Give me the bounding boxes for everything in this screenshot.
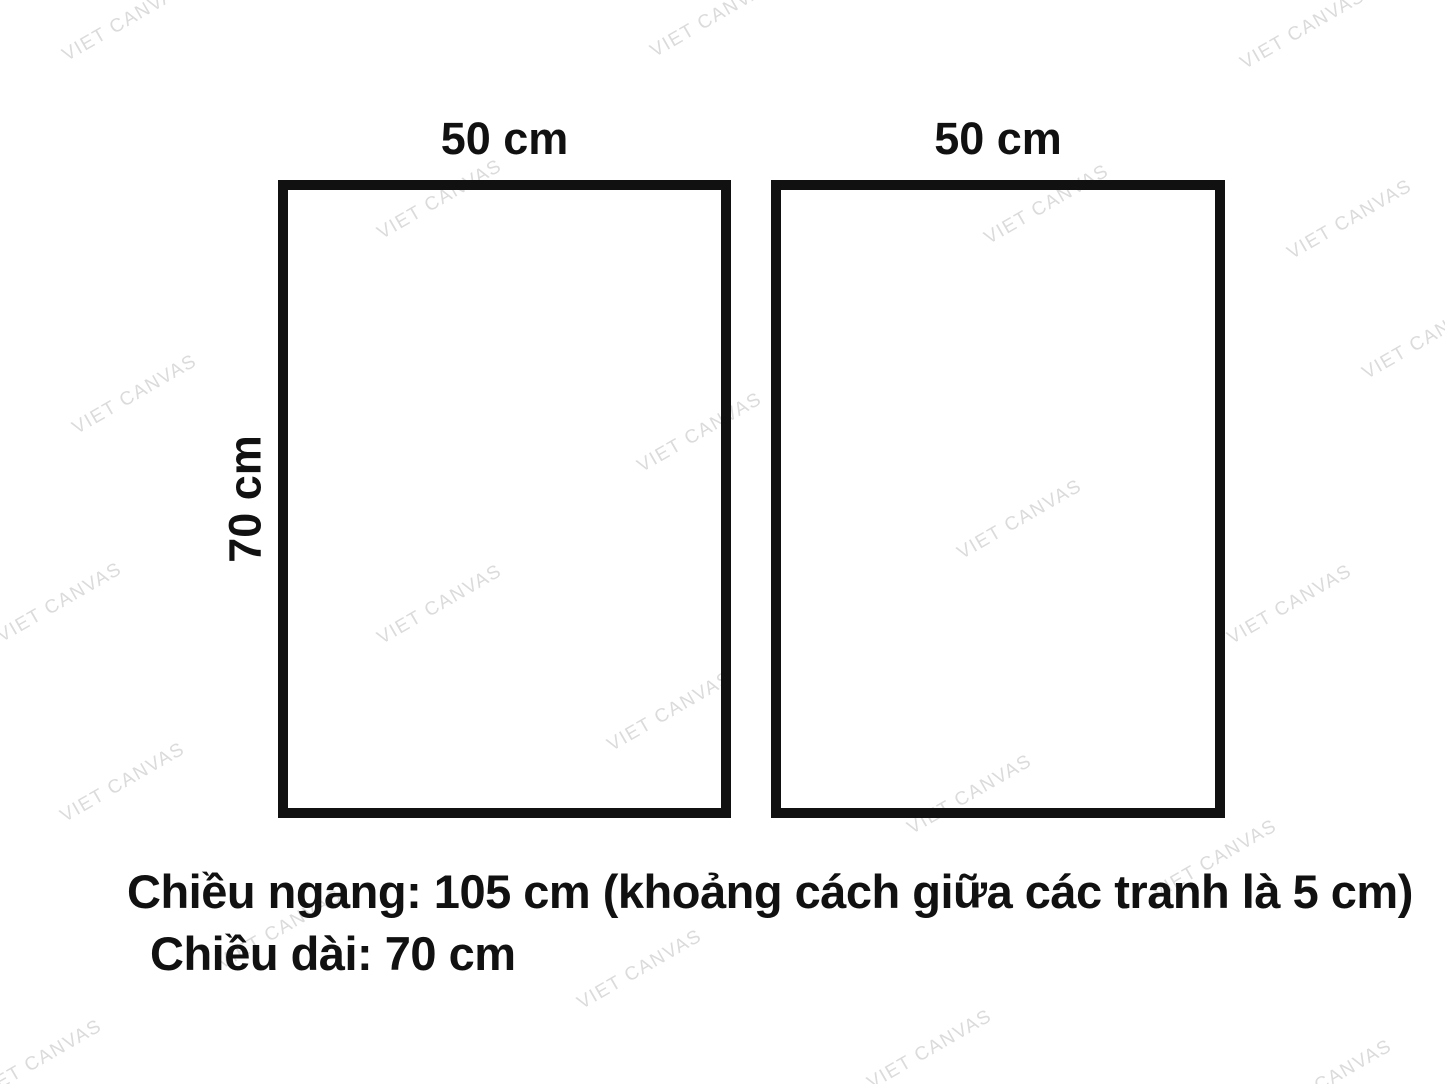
caption-vertical-dimension: Chiều dài: 70 cm xyxy=(150,923,1413,985)
left-canvas-frame xyxy=(278,180,731,818)
size-diagram: VIET CANVASVIET CANVASVIET CANVASVIET CA… xyxy=(0,0,1445,1084)
left-panel-width-label: 50 cm xyxy=(278,116,731,161)
caption: Chiều ngang: 105 cm (khoảng cách giữa cá… xyxy=(127,861,1413,985)
right-panel-width-label: 50 cm xyxy=(771,116,1225,161)
right-canvas-frame xyxy=(771,180,1225,818)
left-panel-height-label: 70 cm xyxy=(223,435,268,563)
diagram-ink-layer: 50 cm 50 cm 70 cm Chiều ngang: 105 cm (k… xyxy=(0,0,1445,1084)
caption-horizontal-dimension: Chiều ngang: 105 cm (khoảng cách giữa cá… xyxy=(127,861,1413,923)
